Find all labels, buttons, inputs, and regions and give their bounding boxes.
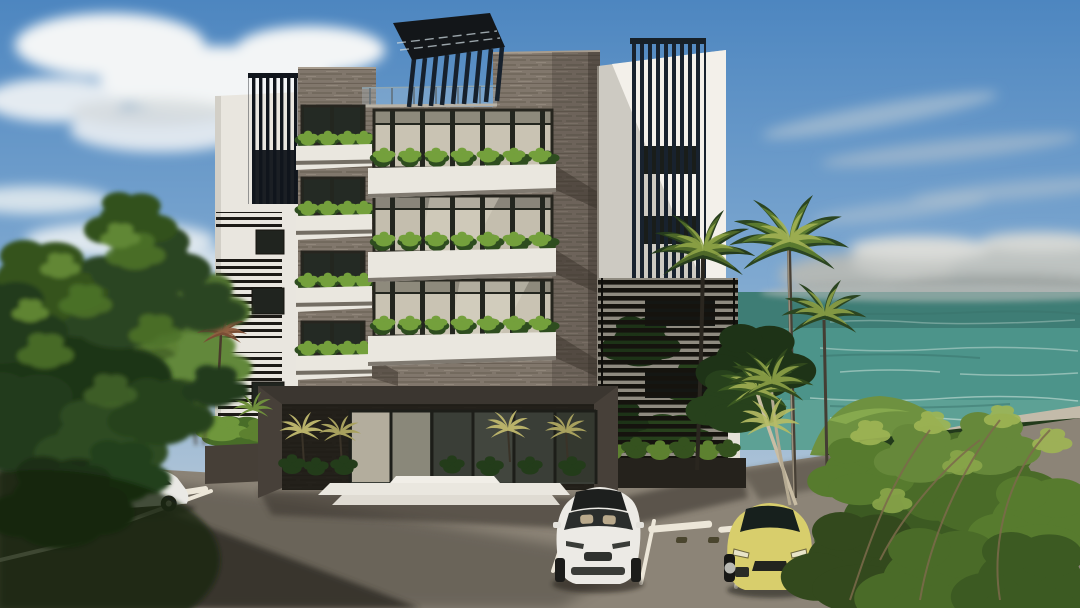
screen-planter-wall	[598, 458, 746, 488]
sportscar-intake-left	[735, 567, 749, 577]
entrance-glass-doors	[350, 410, 596, 484]
horizontal-louver-band-1	[216, 212, 282, 228]
suv-mirror-left	[553, 522, 561, 528]
suv-bumper-intake	[571, 567, 625, 575]
tower-louver-cap	[630, 38, 706, 44]
suv-mirror-right	[636, 522, 644, 528]
suv-seat-left	[580, 514, 593, 524]
sportscar-hood	[734, 532, 806, 552]
sportscar-hood-vent-left	[676, 537, 688, 543]
suv-wheel-right	[631, 558, 641, 582]
ground-floor	[258, 386, 618, 505]
architectural-render-scene	[0, 0, 1080, 608]
suv-wheel-left	[555, 558, 565, 582]
left-wing-window-2	[252, 288, 284, 314]
entrance-fascia	[258, 386, 618, 406]
suv-seat-right	[603, 515, 616, 525]
sportscar-rim-left	[725, 563, 736, 574]
left-wing-window-1	[256, 230, 284, 254]
sportscar-hood-vent-right	[708, 537, 720, 543]
suv-grille	[584, 552, 612, 561]
entrance-jamb-right	[594, 386, 618, 498]
